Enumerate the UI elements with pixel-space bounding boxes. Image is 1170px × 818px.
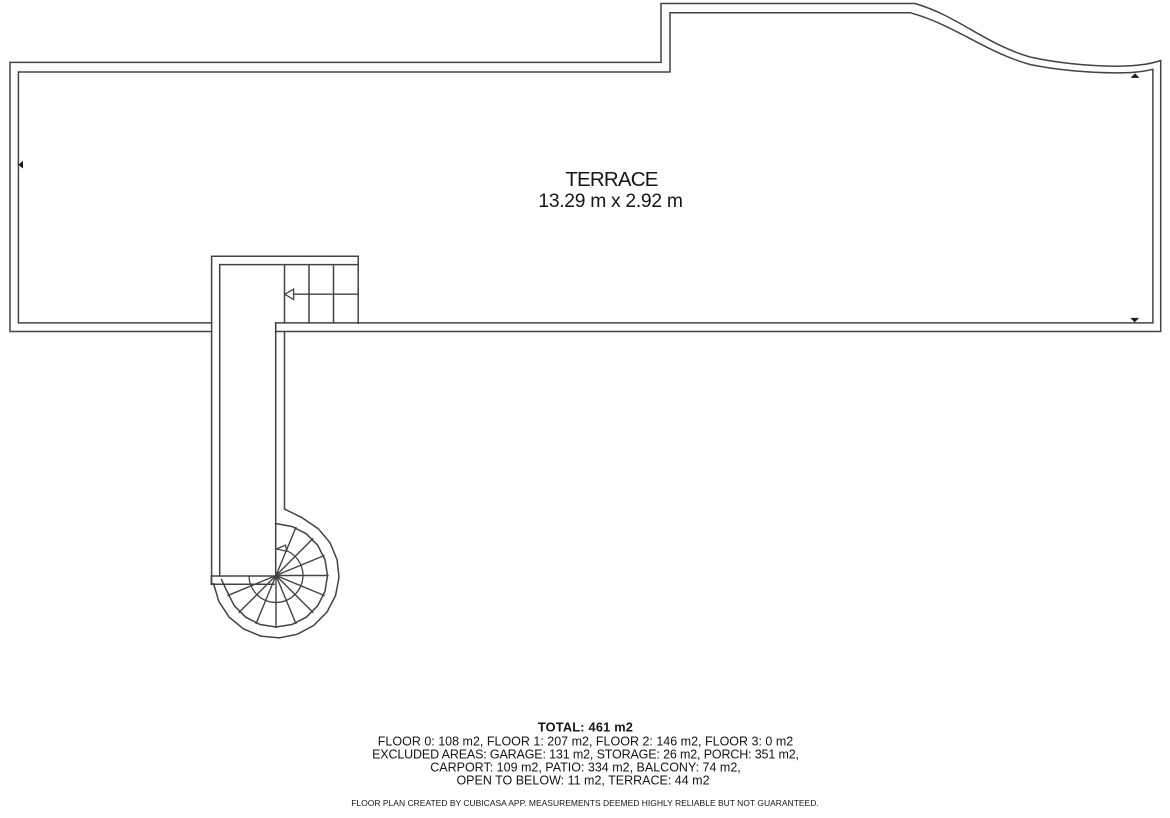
svg-text:TERRACE: TERRACE (565, 168, 657, 191)
svg-text:TOTAL: 461 m2: TOTAL: 461 m2 (538, 720, 633, 735)
svg-text:FLOOR 0: 108 m2, FLOOR 1: 207: FLOOR 0: 108 m2, FLOOR 1: 207 m2, FLOOR … (378, 734, 793, 748)
svg-text:FLOOR PLAN CREATED BY CUBICASA: FLOOR PLAN CREATED BY CUBICASA APP. MEAS… (351, 798, 818, 808)
svg-text:EXCLUDED AREAS: GARAGE: 131 m2: EXCLUDED AREAS: GARAGE: 131 m2, STORAGE:… (372, 748, 799, 762)
svg-text:OPEN TO BELOW: 11 m2, TERRACE:: OPEN TO BELOW: 11 m2, TERRACE: 44 m2 (456, 774, 709, 788)
svg-text:13.29 m x 2.92 m: 13.29 m x 2.92 m (538, 191, 682, 212)
svg-text:CARPORT: 109 m2, PATIO: 334 m2: CARPORT: 109 m2, PATIO: 334 m2, BALCONY:… (430, 761, 741, 775)
